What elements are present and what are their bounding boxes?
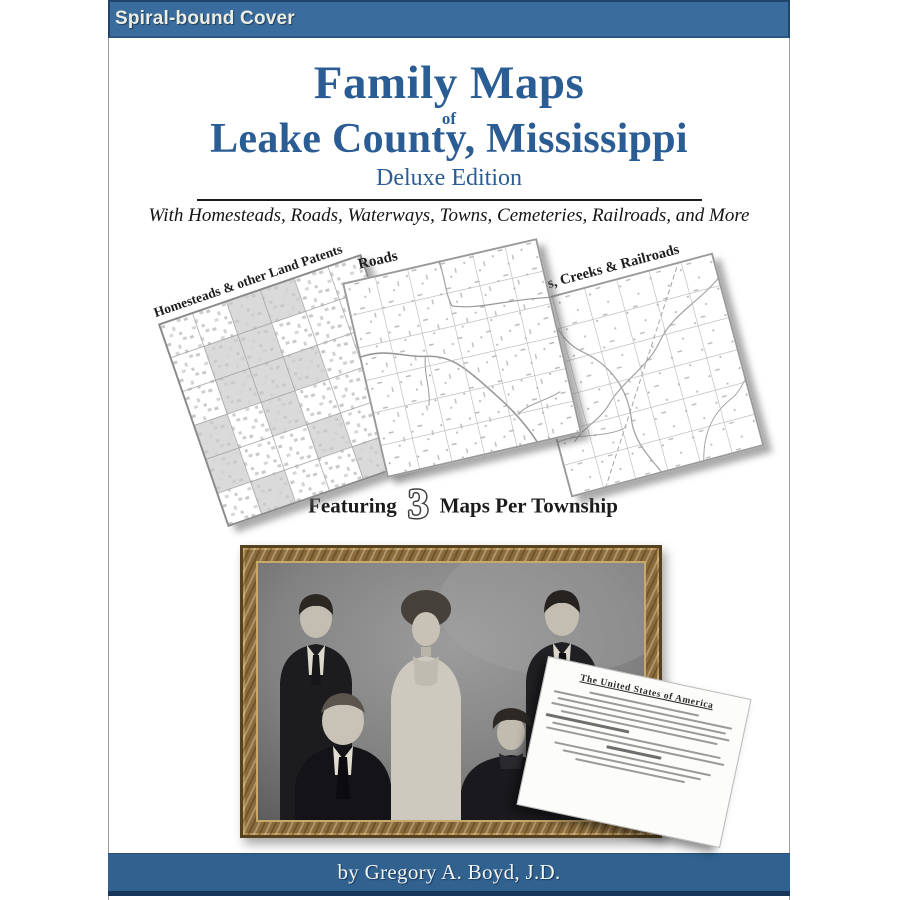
document-signature-line xyxy=(575,757,686,782)
edition-label: Deluxe Edition xyxy=(109,166,789,190)
featuring-number: 3 xyxy=(408,487,429,525)
featuring-prefix: Featuring xyxy=(308,493,397,517)
byline-bar: by Gregory A. Boyd, J.D. xyxy=(108,853,790,896)
author-byline: by Gregory A. Boyd, J.D. xyxy=(337,860,560,885)
title-divider-rule xyxy=(197,199,702,201)
township-grid-roads xyxy=(342,238,582,478)
featuring-suffix: Maps Per Township xyxy=(440,493,618,517)
map-thumbnail-roads: Roads xyxy=(342,238,582,478)
book-cover-page: Spiral-bound Cover Family Maps of Leake … xyxy=(108,0,790,900)
map-label-roads: Roads xyxy=(357,248,400,274)
title-block: Family Maps of Leake County, Mississippi… xyxy=(109,60,789,227)
document-text-line xyxy=(562,749,700,780)
format-banner-label: Spiral-bound Cover xyxy=(110,8,295,30)
format-banner: Spiral-bound Cover xyxy=(108,0,790,38)
county-title: Leake County, Mississippi xyxy=(109,118,789,160)
series-title: Family Maps xyxy=(109,60,789,107)
cover-tagline: With Homesteads, Roads, Waterways, Towns… xyxy=(109,206,789,227)
